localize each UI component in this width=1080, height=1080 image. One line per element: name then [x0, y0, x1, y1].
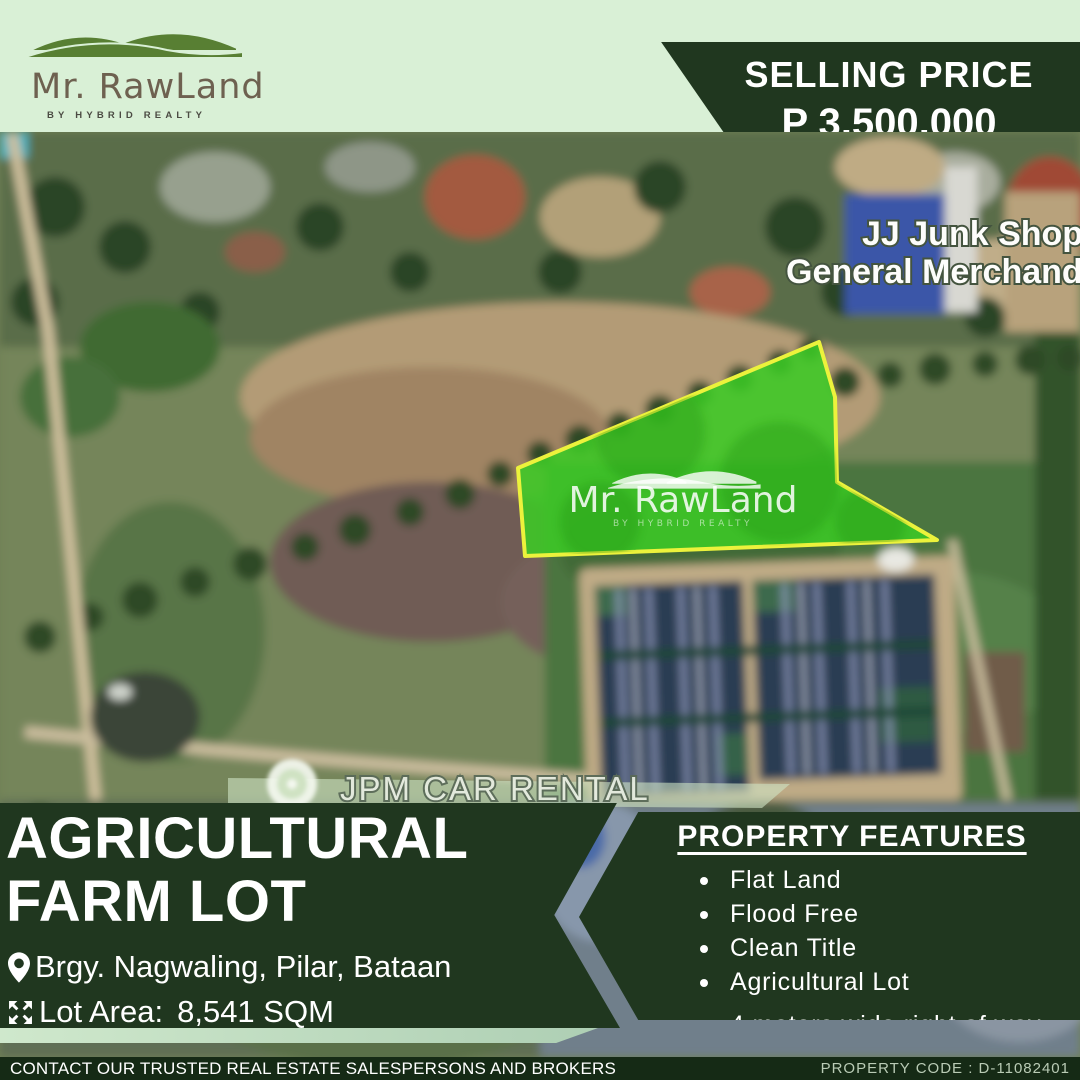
location-pin-icon: [8, 952, 30, 983]
bullet-icon: [700, 911, 708, 919]
lot-area-row: Lot Area: 8,541 SQM: [8, 994, 334, 1030]
feature-text: Clean Title: [730, 934, 857, 963]
feature-item: Flat Land: [700, 866, 1080, 895]
brand-name: Mr. RawLand: [25, 67, 265, 107]
features-title: PROPERTY FEATURES: [578, 820, 1080, 854]
features-panel: PROPERTY FEATURES Flat Land Flood Free C…: [578, 812, 1080, 1020]
hills-logo-icon: [25, 20, 243, 60]
shop-label-line1: JJ Junk Shop: [862, 215, 1080, 253]
feature-item: Clean Title: [700, 934, 1080, 963]
feature-text: Flat Land: [730, 866, 841, 895]
feature-item: Flood Free: [700, 900, 1080, 929]
feature-text: Agricultural Lot: [730, 968, 910, 997]
listing-title: AGRICULTURAL FARM LOT: [6, 807, 468, 933]
bullet-icon: [700, 877, 708, 885]
mint-accent-bar: [0, 1028, 598, 1043]
bullet-icon: [700, 979, 708, 987]
bullet-icon: [700, 945, 708, 953]
brand-tagline: BY HYBRID REALTY: [25, 110, 265, 121]
feature-text: Flood Free: [730, 900, 859, 929]
lot-area-value: 8,541 SQM: [177, 994, 334, 1030]
selling-price-label: SELLING PRICE: [640, 54, 1080, 96]
listing-title-line1: AGRICULTURAL: [6, 807, 468, 870]
rental-label: JPM CAR RENTAL: [340, 770, 650, 807]
listing-title-line2: FARM LOT: [6, 870, 468, 933]
watermark-tagline: BY HYBRID REALTY: [613, 519, 753, 529]
footer-property-code: PROPERTY CODE : D-11082401: [821, 1060, 1070, 1077]
location-text: Brgy. Nagwaling, Pilar, Bataan: [35, 949, 451, 985]
lot-area-label: Lot Area:: [39, 994, 163, 1030]
place-pin-icon: [267, 759, 317, 809]
brand-logo: Mr. RawLand BY HYBRID REALTY: [25, 20, 265, 121]
lot-area-icon: [8, 1000, 33, 1025]
map-watermark: Mr. RawLand BY HYBRID REALTY: [569, 471, 798, 529]
feature-item: Agricultural Lot: [700, 968, 1080, 997]
footer-contact-text: CONTACT OUR TRUSTED REAL ESTATE SALESPER…: [10, 1059, 616, 1079]
features-list: Flat Land Flood Free Clean Title Agricul…: [578, 866, 1080, 1040]
flyer: Mr. RawLand BY HYBRID REALTY SELLING PRI…: [0, 0, 1080, 1080]
location-row: Brgy. Nagwaling, Pilar, Bataan: [8, 949, 451, 985]
footer-bar: CONTACT OUR TRUSTED REAL ESTATE SALESPER…: [0, 1057, 1080, 1080]
watermark-name: Mr. RawLand: [569, 480, 798, 521]
shop-label-line2: General Merchandis: [786, 253, 1080, 291]
listing-panel: AGRICULTURAL FARM LOT Brgy. Nagwaling, P…: [0, 803, 620, 1028]
